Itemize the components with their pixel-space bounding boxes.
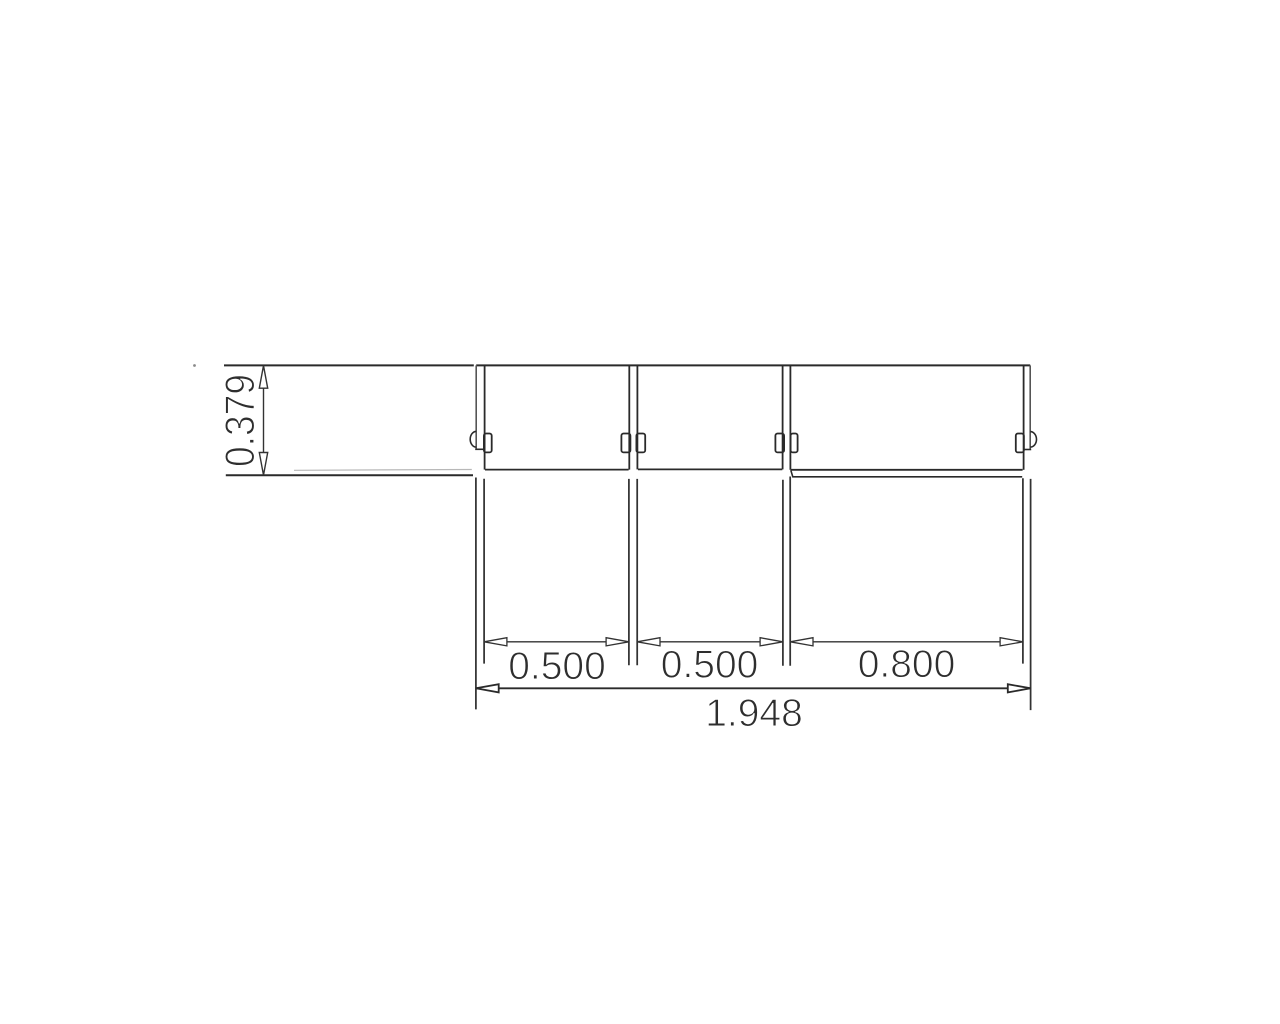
svg-text:0.500: 0.500 <box>661 644 759 687</box>
svg-text:1.948: 1.948 <box>705 692 803 735</box>
svg-text:0.379: 0.379 <box>216 374 263 467</box>
svg-text:0.800: 0.800 <box>858 643 956 686</box>
svg-text:0.500: 0.500 <box>508 645 606 688</box>
